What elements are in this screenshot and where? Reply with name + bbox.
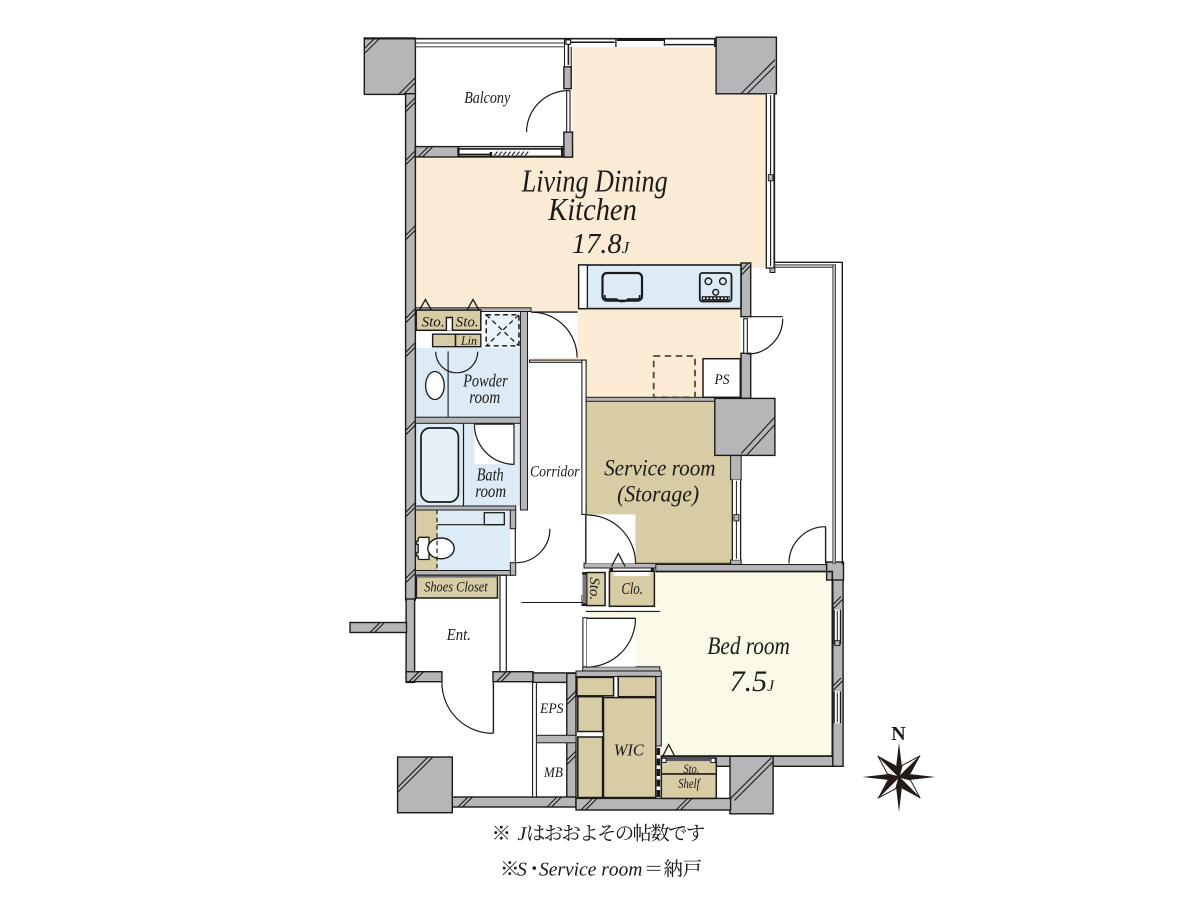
- svg-text:room: room: [469, 387, 500, 407]
- svg-text:Kitchen: Kitchen: [547, 192, 636, 227]
- svg-text:Lin: Lin: [460, 333, 477, 348]
- svg-text:N: N: [891, 723, 906, 745]
- svg-text:room: room: [475, 481, 506, 501]
- svg-text:PS: PS: [714, 372, 731, 388]
- svg-text:Ent.: Ent.: [446, 625, 471, 644]
- svg-text:Sto.: Sto.: [456, 315, 479, 331]
- svg-text:MB: MB: [543, 765, 563, 781]
- svg-text:Sto.: Sto.: [586, 577, 602, 600]
- svg-text:Shelf: Shelf: [678, 776, 701, 791]
- svg-text:EPS: EPS: [539, 701, 564, 717]
- svg-text:Sto.: Sto.: [683, 762, 699, 776]
- svg-text:(Storage): (Storage): [617, 482, 699, 507]
- svg-text:Service room: Service room: [604, 455, 716, 480]
- svg-text:Balcony: Balcony: [464, 88, 511, 107]
- svg-text:Shoes Closet: Shoes Closet: [424, 580, 488, 596]
- svg-text:Bed room: Bed room: [707, 633, 790, 660]
- svg-text:Clo.: Clo.: [621, 579, 643, 598]
- svg-text:Corridor: Corridor: [530, 464, 580, 481]
- svg-text:WIC: WIC: [614, 740, 645, 759]
- svg-text:Sto.: Sto.: [422, 315, 445, 331]
